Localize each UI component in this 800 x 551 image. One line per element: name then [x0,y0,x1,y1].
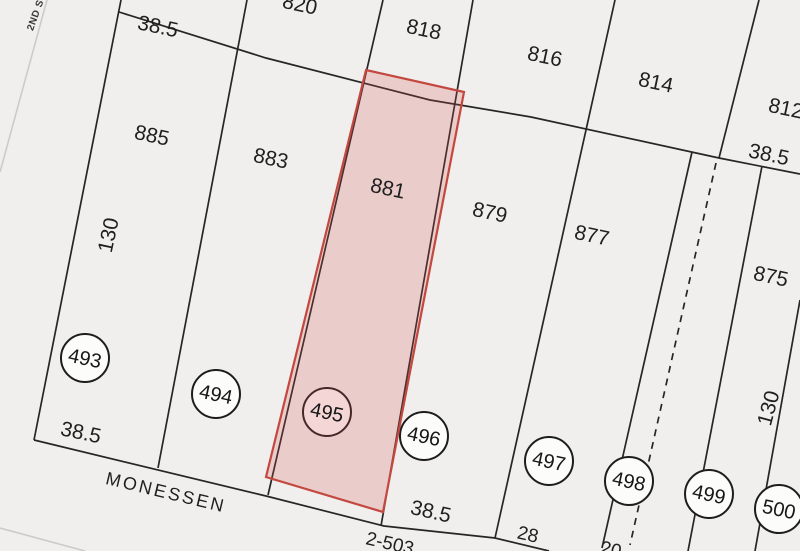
plat-map: 493 494 495 496 497 498 499 500 820 818 … [0,0,800,551]
plat-map-viewport: 493 494 495 496 497 498 499 500 820 818 … [0,0,800,551]
